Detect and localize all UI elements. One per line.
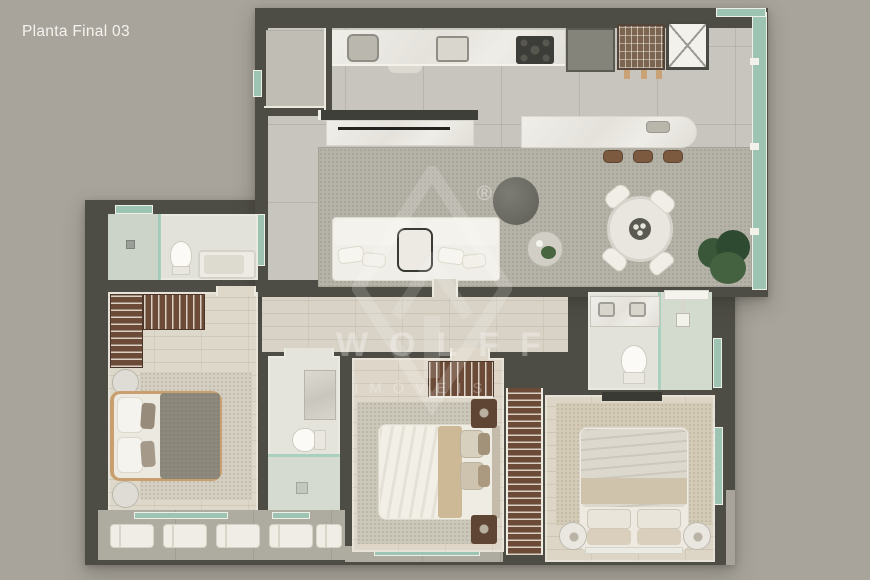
watermark-subtitle: IMÓVEIS: [354, 380, 494, 397]
closet-vertical: [110, 294, 143, 368]
toilet-tank: [172, 266, 190, 275]
floorplan-canvas: Planta Final 03: [0, 0, 870, 580]
toilet: [170, 241, 192, 269]
headboard: [492, 426, 500, 518]
toilet-tank: [623, 372, 645, 384]
window-mullion: [750, 58, 759, 65]
table-centerpiece: [629, 218, 651, 240]
nightstand: [683, 522, 711, 550]
bed-pillow: [587, 509, 631, 529]
toilet-tank: [314, 430, 326, 450]
lounge-chair: [216, 524, 260, 548]
wall-step-notch: [726, 490, 735, 565]
shower-glass: [158, 214, 161, 280]
toilet: [621, 345, 647, 375]
side-table-plant: [541, 246, 556, 259]
bed-pillow: [117, 437, 143, 473]
bathroom-window: [713, 338, 722, 388]
side-table-decor: [536, 240, 543, 247]
nightstand: [471, 515, 497, 544]
island-stool: [663, 150, 683, 163]
kitchen-island: [521, 116, 697, 148]
shower-drain: [296, 482, 308, 494]
pantry-floor: [266, 30, 324, 108]
window-mullion: [750, 228, 759, 235]
vanity: [304, 370, 336, 420]
accent-pillow: [140, 403, 156, 430]
refrigerator: [566, 28, 615, 72]
closet-horizontal: [143, 294, 205, 330]
accent-pillow: [478, 433, 490, 455]
bedroom-window: [714, 427, 723, 505]
cooktop: [516, 36, 554, 64]
registered-mark: ®: [477, 183, 492, 206]
sliding-door-glass: [272, 512, 310, 519]
shower-niche: [664, 290, 709, 300]
left-bedroom-door-gap: [216, 286, 256, 296]
island-tray: [646, 121, 670, 133]
bar-stool-leg: [641, 70, 647, 79]
dresser-console: [602, 392, 662, 401]
bar-stool-leg: [656, 70, 662, 79]
wine-rack-cabinet: [617, 24, 665, 70]
bed-pillow: [637, 529, 681, 545]
island-stool: [603, 150, 623, 163]
accent-pillow: [140, 441, 156, 468]
tv-sideboard: [326, 120, 474, 146]
kitchen-sink-left: [347, 34, 379, 62]
facade-window: [253, 70, 262, 97]
lounge-chair: [316, 524, 342, 548]
bed-duvet-gray: [160, 393, 220, 479]
toilet: [292, 428, 316, 452]
lounge-chair: [269, 524, 313, 548]
page-title: Planta Final 03: [22, 23, 130, 41]
vanity-sink: [598, 302, 615, 317]
shower-head-icon: [676, 313, 690, 327]
bed-pillow: [587, 529, 631, 545]
bathtub-basin: [204, 255, 244, 274]
island-stool: [633, 150, 653, 163]
vanity-sink: [629, 302, 646, 317]
nightstand: [559, 522, 587, 550]
lounge-chair: [163, 524, 207, 548]
bar-stool-leg: [624, 70, 630, 79]
kitchen-sink-right: [436, 36, 469, 62]
bathroom-window: [115, 205, 153, 214]
window-mullion: [750, 143, 759, 150]
shaft-x-box: [666, 21, 709, 70]
corner-plant: [710, 252, 746, 284]
shower-area: [661, 292, 712, 390]
nightstand: [112, 481, 139, 508]
bed-pillow: [117, 397, 143, 433]
tv-screen: [338, 127, 450, 130]
counter-ledge: [388, 66, 422, 73]
pantry-divider-wall: [324, 28, 332, 116]
bed-duvet-white: [380, 426, 440, 518]
watermark-brand: WOLFF: [336, 326, 562, 365]
tv-wall: [318, 110, 478, 120]
bed-bench: [585, 547, 683, 554]
bed-throw: [438, 426, 462, 518]
lounge-chair: [110, 524, 154, 548]
corner-window: [716, 8, 766, 17]
shower-arm: [681, 300, 685, 313]
bed-pillow: [637, 509, 681, 529]
shower-head-icon: [126, 240, 135, 249]
accent-pillow: [478, 465, 490, 487]
duvet-band: [581, 478, 687, 504]
sliding-door-glass: [134, 512, 228, 519]
living-window-wall: [752, 12, 767, 290]
middle-bathroom-door-gap: [284, 348, 334, 358]
pantry-wall: [264, 106, 326, 116]
